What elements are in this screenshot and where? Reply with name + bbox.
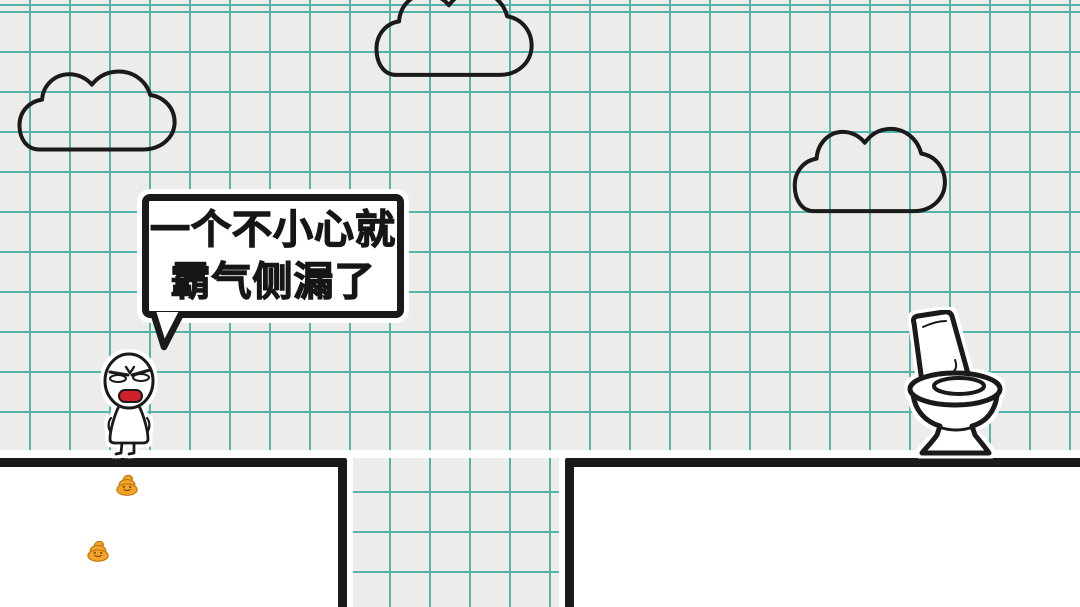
platform-left (0, 458, 347, 607)
character-eye (133, 374, 149, 381)
platform-right (565, 458, 1080, 607)
character-eye (110, 375, 126, 382)
character-legs (116, 443, 134, 454)
poop-icon[interactable] (115, 474, 139, 496)
character-body (110, 406, 148, 443)
speech-bubble-text-line1: 一个不小心就 (150, 204, 396, 256)
speech-bubble-tail (146, 311, 190, 353)
toilet-icon[interactable] (892, 310, 1010, 456)
cloud-icon (0, 63, 184, 157)
speech-bubble-text-line2: 霸气侧漏了 (171, 256, 376, 308)
speech-bubble: 一个不小心就 霸气侧漏了 (142, 194, 404, 318)
character-mouth (119, 390, 142, 402)
poop-icon[interactable] (86, 540, 110, 562)
cloud-icon (772, 120, 954, 219)
angry-character[interactable] (98, 346, 170, 458)
cloud-icon (353, 0, 541, 83)
game-stage: 一个不小心就 霸气侧漏了 (0, 0, 1080, 607)
